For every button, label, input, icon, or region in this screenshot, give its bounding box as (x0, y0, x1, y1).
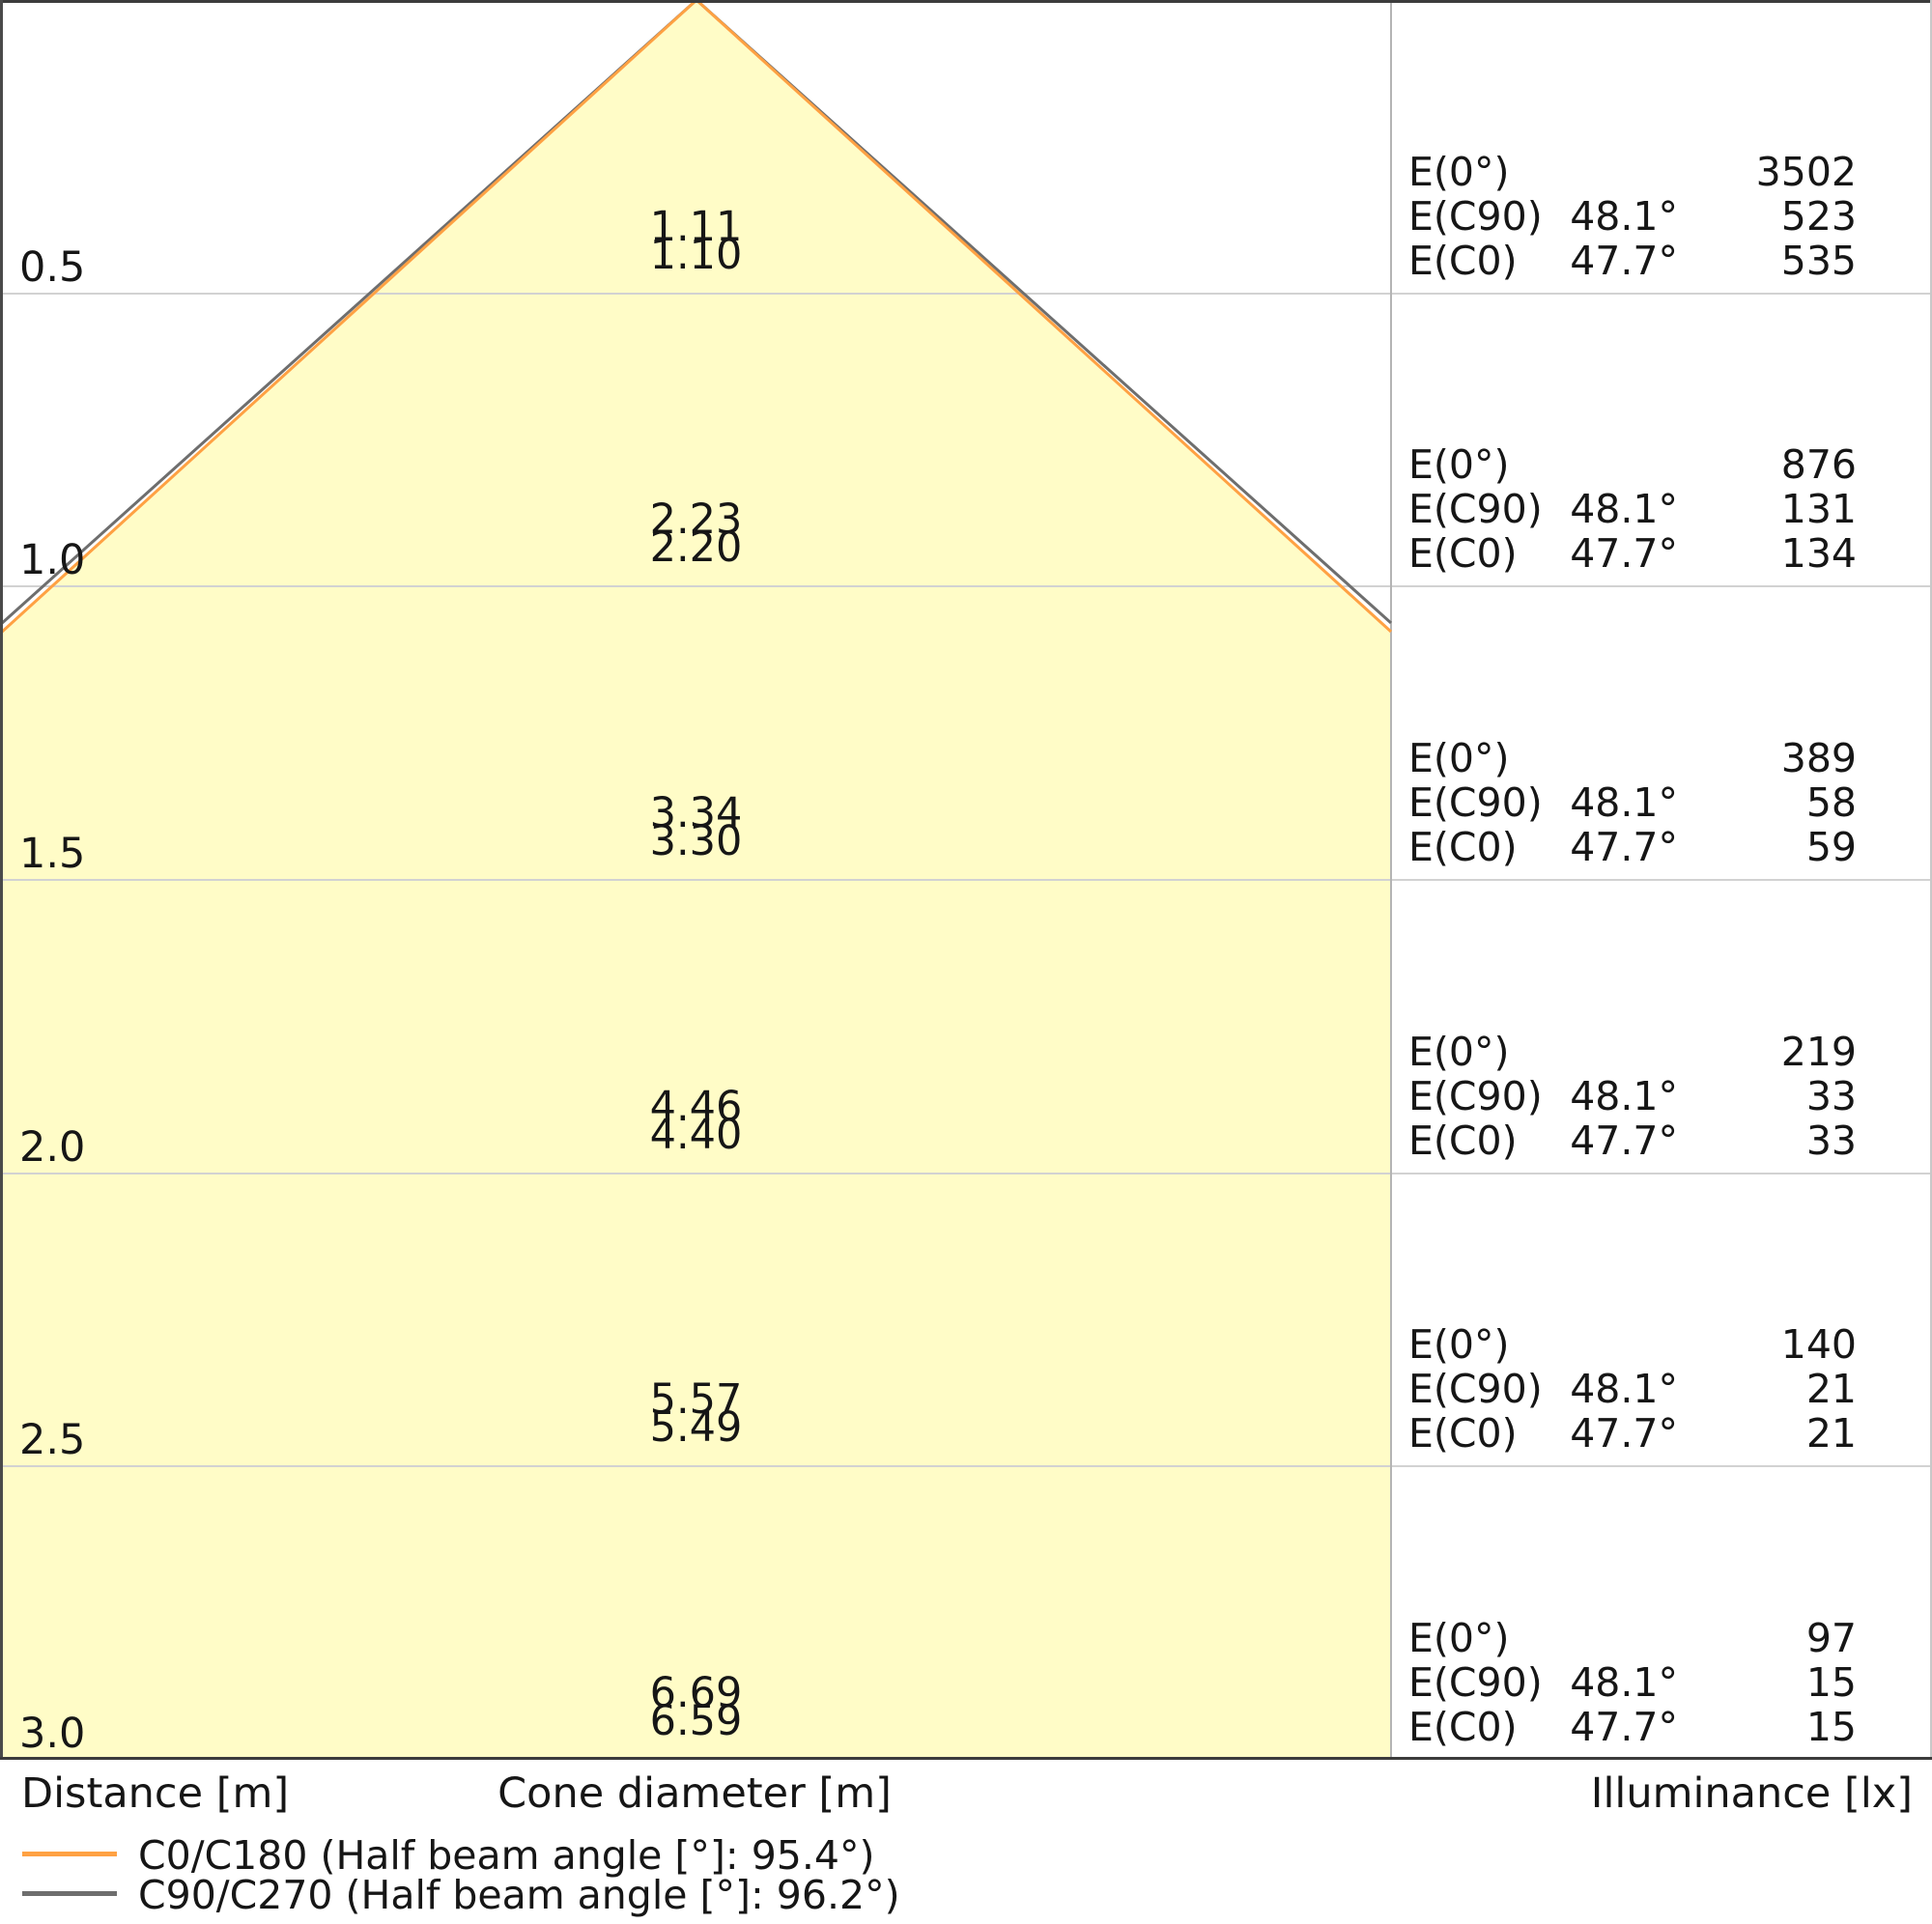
illuminance-row: E(C90) 48.1° 15 (0, 1661, 1932, 1708)
e0-value: 97 (1586, 1617, 1857, 1660)
e0-value: 3502 (1586, 151, 1857, 194)
illuminance-row: E(C0) 47.7° 21 (0, 1412, 1932, 1458)
ec90-value: 58 (1586, 781, 1857, 825)
ec0-value: 21 (1586, 1412, 1857, 1456)
illuminance-row: E(C90) 48.1° 21 (0, 1368, 1932, 1414)
illuminance-row: E(C0) 47.7° 15 (0, 1706, 1932, 1752)
illuminance-row: E(C0) 47.7° 33 (0, 1119, 1932, 1166)
ec0-value: 15 (1586, 1706, 1857, 1749)
illuminance-axis-label: Illuminance [lx] (1591, 1773, 1913, 1815)
ec90-value: 523 (1586, 195, 1857, 239)
e0-value: 389 (1586, 737, 1857, 780)
e0-value: 876 (1586, 443, 1857, 487)
illuminance-row: E(C0) 47.7° 59 (0, 826, 1932, 872)
ec90-value: 21 (1586, 1368, 1857, 1411)
e0-label: E(0°) (1408, 443, 1509, 487)
illuminance-row: E(0°) 219 (0, 1031, 1932, 1077)
ec0-value: 33 (1586, 1119, 1857, 1163)
ec0-value: 59 (1586, 826, 1857, 869)
ec90-value: 131 (1586, 488, 1857, 531)
illuminance-row: E(0°) 97 (0, 1617, 1932, 1663)
ec90-value: 33 (1586, 1075, 1857, 1118)
illuminance-row: E(0°) 876 (0, 443, 1932, 490)
ec90-value: 15 (1586, 1661, 1857, 1705)
legend-line-c0-icon (22, 1852, 117, 1856)
illuminance-row: E(C0) 47.7° 134 (0, 532, 1932, 579)
e0-label: E(0°) (1408, 151, 1509, 194)
cone-diameter-axis-label: Cone diameter [m] (0, 1773, 1389, 1815)
e0-label: E(0°) (1408, 1031, 1509, 1074)
illuminance-row: E(C0) 47.7° 535 (0, 240, 1932, 286)
legend-label-c90: C90/C270 (Half beam angle [°]: 96.2°) (138, 1875, 900, 1916)
illuminance-row: E(C90) 48.1° 58 (0, 781, 1932, 828)
illuminance-row: E(C90) 48.1° 33 (0, 1075, 1932, 1121)
illuminance-row: E(C90) 48.1° 523 (0, 195, 1932, 241)
e0-label: E(0°) (1408, 1617, 1509, 1660)
ec0-value: 134 (1586, 532, 1857, 576)
e0-value: 140 (1586, 1323, 1857, 1367)
legend-label-c0: C0/C180 (Half beam angle [°]: 95.4°) (138, 1835, 875, 1877)
legend-line-c90-icon (22, 1891, 117, 1896)
illuminance-row: E(0°) 3502 (0, 151, 1932, 197)
cone-diagram-page: 0.5 1.0 1.5 2.0 2.5 3.0 1.11 1.10 2.23 2… (0, 0, 1932, 1924)
e0-label: E(0°) (1408, 737, 1509, 780)
ec0-value: 535 (1586, 240, 1857, 283)
illuminance-row: E(0°) 140 (0, 1323, 1932, 1370)
illuminance-row: E(0°) 389 (0, 737, 1932, 783)
e0-label: E(0°) (1408, 1323, 1509, 1367)
e0-value: 219 (1586, 1031, 1857, 1074)
illuminance-row: E(C90) 48.1° 131 (0, 488, 1932, 534)
